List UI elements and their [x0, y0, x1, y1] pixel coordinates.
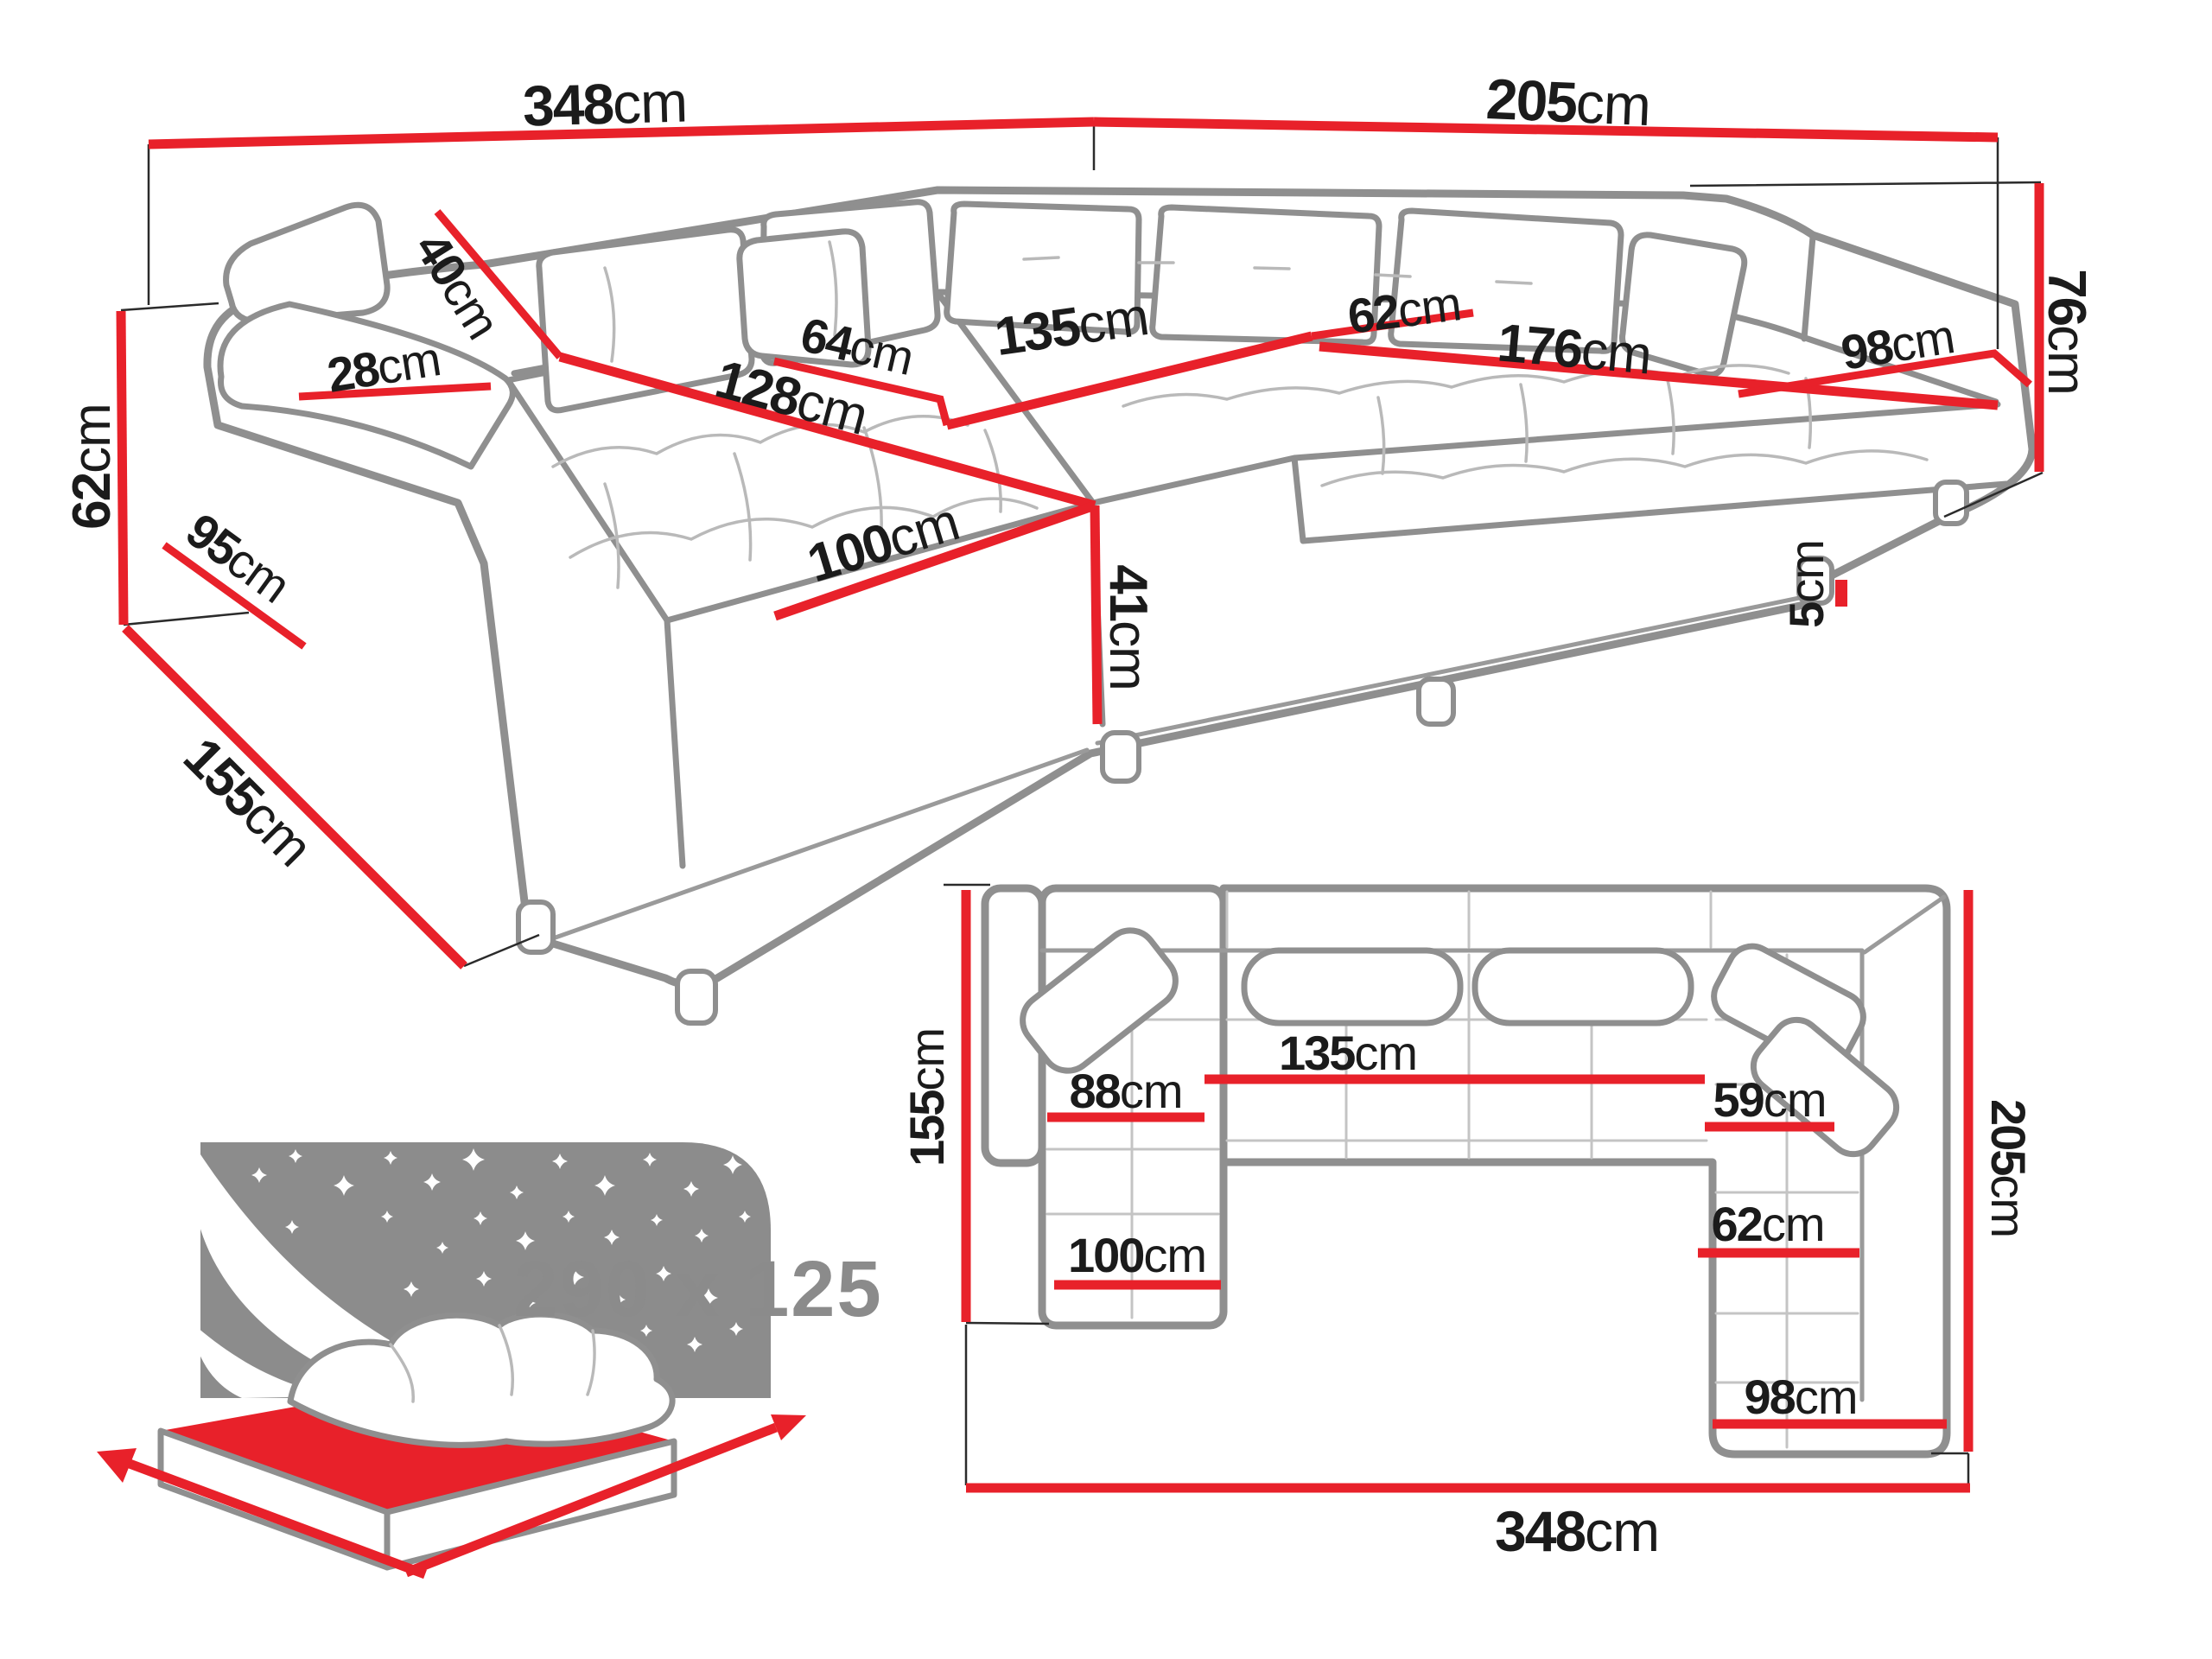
plan-pillow — [1244, 950, 1460, 1023]
plan-label-348: 348cm — [1495, 1499, 1659, 1563]
plan-label-135: 135cm — [1279, 1026, 1417, 1080]
plan-label-88: 88cm — [1070, 1064, 1183, 1118]
dimension-diagram: 348cm 205cm 76cm 62cm 28cm 95cm 155cm 40… — [0, 0, 2212, 1659]
sofa-leg — [1103, 733, 1139, 781]
back-cushion-4 — [1153, 207, 1379, 342]
dim-label-76: 76cm — [2037, 269, 2097, 395]
dim-line-41 — [1095, 505, 1097, 724]
dim-label-41: 41cm — [1099, 564, 1159, 690]
sofa-plan-view: 155cm 205cm 88cm 135cm 59cm 62cm 100cm 9… — [899, 885, 2037, 1563]
dim-label-205-back: 205cm — [1484, 67, 1651, 137]
sofa-leg — [677, 971, 715, 1023]
plan-label-155: 155cm — [899, 1028, 954, 1166]
arrow-width-head — [771, 1414, 806, 1440]
plan-pillow — [1475, 950, 1691, 1023]
sofa-leg — [1935, 482, 1967, 524]
plan-label-205: 205cm — [1982, 1099, 2037, 1237]
dim-line-155 — [125, 628, 464, 966]
sofa-leg — [1419, 679, 1453, 724]
dim-line-5 — [1835, 580, 1847, 607]
pillow-left-arm — [226, 205, 388, 321]
plan-label-100: 100cm — [1068, 1228, 1206, 1282]
sleeping-function-icon: 290 x 125 — [97, 1142, 883, 1574]
plan-label-59: 59cm — [1713, 1072, 1827, 1127]
sofa-leg — [518, 902, 553, 952]
sleeping-area-size: 290 x 125 — [513, 1245, 882, 1333]
plan-label-62: 62cm — [1712, 1197, 1825, 1251]
dim-label-348-back: 348cm — [522, 70, 688, 138]
dim-label-62-armrest: 62cm — [62, 404, 122, 530]
dim-label-5: 5cm — [1779, 540, 1834, 628]
plan-label-98: 98cm — [1745, 1370, 1858, 1424]
